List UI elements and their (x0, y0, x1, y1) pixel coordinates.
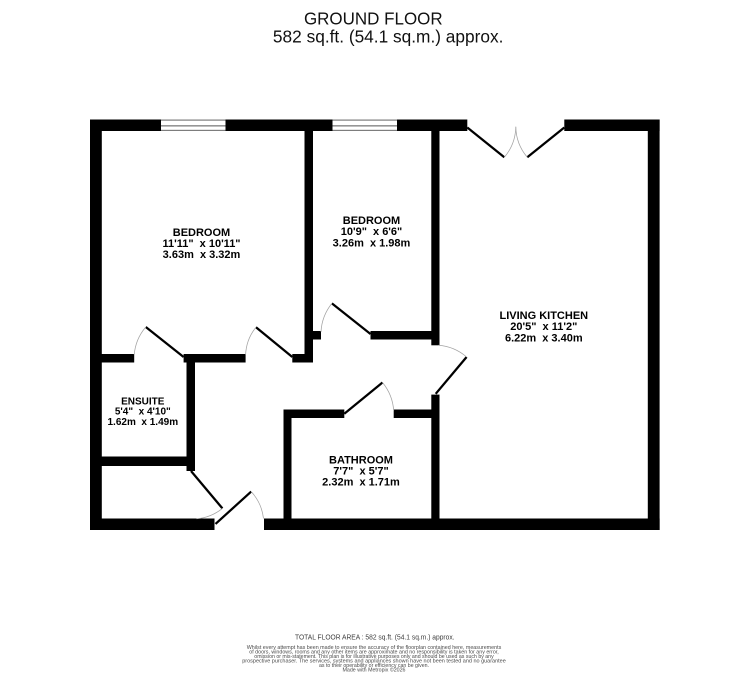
svg-text:LIVING KITCHEN: LIVING KITCHEN (499, 310, 588, 322)
svg-text:582 sq.ft. (54.1 sq.m.) approx: 582 sq.ft. (54.1 sq.m.) approx. (273, 26, 504, 46)
svg-text:TOTAL FLOOR AREA : 582 sq.ft.: TOTAL FLOOR AREA : 582 sq.ft. (54.1 sq.m… (295, 634, 455, 641)
svg-text:2.32m x 1.71m: 2.32m x 1.71m (322, 477, 400, 489)
svg-text:20'5" x 11'2": 20'5" x 11'2" (510, 321, 577, 333)
svg-text:3.63m x 3.32m: 3.63m x 3.32m (163, 249, 241, 261)
svg-text:BEDROOM: BEDROOM (343, 215, 400, 227)
svg-text:3.26m x 1.98m: 3.26m x 1.98m (333, 237, 411, 249)
svg-text:1.62m x 1.49m: 1.62m x 1.49m (107, 417, 178, 428)
svg-text:6.22m x 3.40m: 6.22m x 3.40m (505, 332, 583, 344)
svg-text:10'9" x 6'6": 10'9" x 6'6" (341, 226, 403, 238)
svg-text:BEDROOM: BEDROOM (173, 227, 230, 239)
svg-text:7'7" x 5'7": 7'7" x 5'7" (333, 465, 388, 477)
svg-text:11'11" x 10'11": 11'11" x 10'11" (162, 238, 240, 250)
svg-text:Made with Metropix ©2026: Made with Metropix ©2026 (343, 667, 406, 674)
